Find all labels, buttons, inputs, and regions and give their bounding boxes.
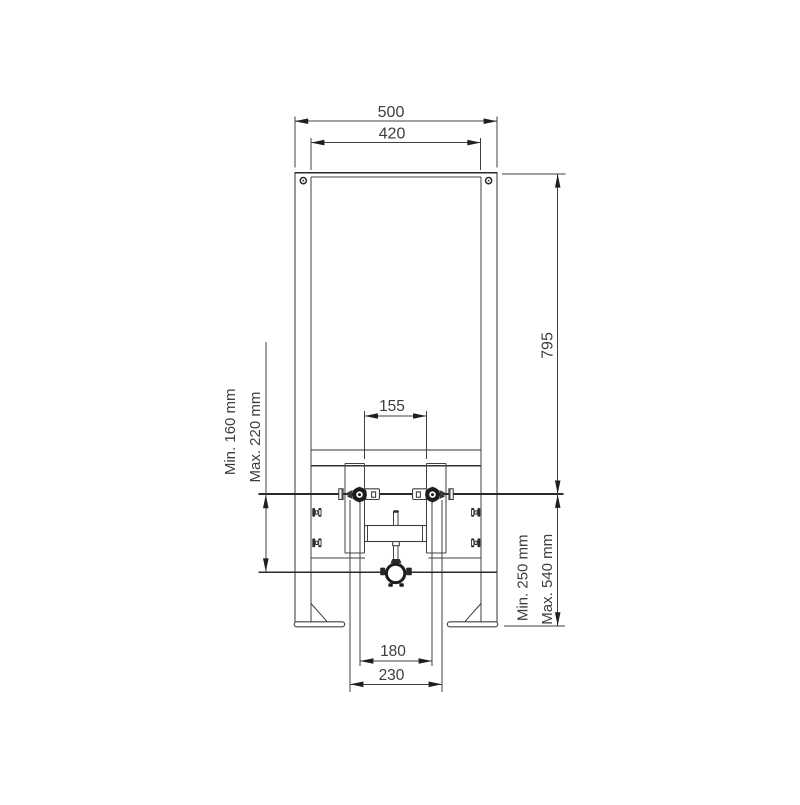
svg-text:420: 420 <box>379 126 406 143</box>
svg-text:795: 795 <box>540 332 557 359</box>
svg-text:500: 500 <box>378 104 405 121</box>
svg-text:Min. 160 mm: Min. 160 mm <box>222 388 239 475</box>
svg-text:Max. 220 mm: Max. 220 mm <box>247 392 264 483</box>
svg-text:Min. 250 mm: Min. 250 mm <box>514 534 531 621</box>
svg-text:155: 155 <box>379 398 405 415</box>
svg-text:180: 180 <box>380 643 406 660</box>
svg-text:230: 230 <box>379 667 405 684</box>
svg-text:Max. 540 mm: Max. 540 mm <box>539 534 556 625</box>
